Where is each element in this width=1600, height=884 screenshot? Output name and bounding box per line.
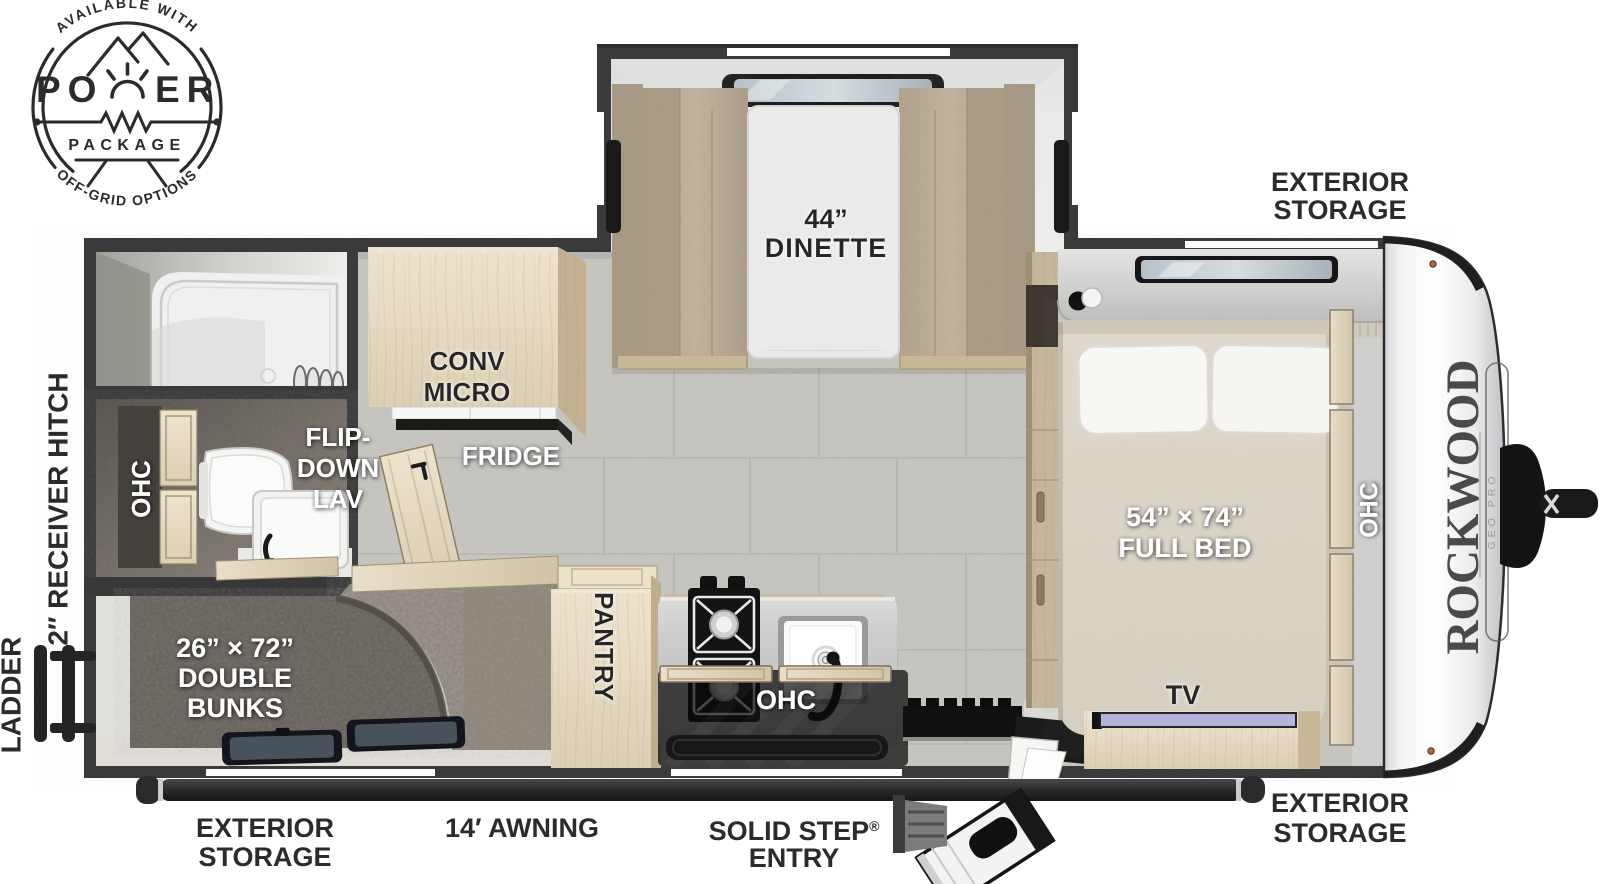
svg-text:CONV: CONV bbox=[429, 346, 505, 376]
svg-text:FULL BED: FULL BED bbox=[1119, 533, 1252, 563]
svg-text:PO: PO bbox=[36, 69, 103, 110]
svg-text:EXTERIOR: EXTERIOR bbox=[1271, 167, 1409, 197]
svg-text:OHC: OHC bbox=[756, 685, 816, 715]
svg-text:LADDER: LADDER bbox=[0, 637, 26, 754]
svg-text:ROCKWOOD: ROCKWOOD bbox=[1437, 359, 1489, 654]
svg-text:GEO PRO: GEO PRO bbox=[1486, 472, 1498, 549]
svg-text:PACKAGE: PACKAGE bbox=[68, 137, 185, 154]
svg-text:PANTRY: PANTRY bbox=[589, 592, 619, 702]
svg-text:ENTRY: ENTRY bbox=[749, 843, 840, 873]
svg-text:BUNKS: BUNKS bbox=[187, 693, 283, 723]
svg-text:LAV: LAV bbox=[313, 484, 364, 514]
svg-text:54” × 74”: 54” × 74” bbox=[1126, 502, 1244, 532]
svg-text:EXTERIOR: EXTERIOR bbox=[1271, 788, 1409, 818]
svg-text:ER: ER bbox=[155, 69, 220, 110]
svg-text:26” × 72”: 26” × 72” bbox=[176, 633, 294, 663]
svg-text:STORAGE: STORAGE bbox=[1273, 818, 1406, 848]
svg-text:EXTERIOR: EXTERIOR bbox=[196, 813, 334, 843]
svg-text:SOLID STEP®: SOLID STEP® bbox=[709, 816, 881, 846]
svg-text:DINETTE: DINETTE bbox=[765, 233, 888, 263]
svg-text:STORAGE: STORAGE bbox=[1273, 195, 1406, 225]
svg-text:STORAGE: STORAGE bbox=[198, 842, 331, 872]
svg-text:FLIP-: FLIP- bbox=[306, 422, 371, 452]
svg-text:44”: 44” bbox=[804, 204, 848, 234]
svg-text:DOWN: DOWN bbox=[297, 453, 379, 483]
svg-text:MICRO: MICRO bbox=[424, 377, 511, 407]
svg-text:FRIDGE: FRIDGE bbox=[462, 441, 560, 471]
svg-text:2″ RECEIVER HITCH: 2″ RECEIVER HITCH bbox=[42, 372, 73, 645]
svg-text:TV: TV bbox=[1166, 680, 1201, 710]
svg-text:DOUBLE: DOUBLE bbox=[178, 663, 292, 693]
svg-text:OHC: OHC bbox=[1356, 482, 1384, 538]
svg-text:OHC: OHC bbox=[126, 460, 156, 518]
svg-text:14′ AWNING: 14′ AWNING bbox=[445, 813, 599, 843]
